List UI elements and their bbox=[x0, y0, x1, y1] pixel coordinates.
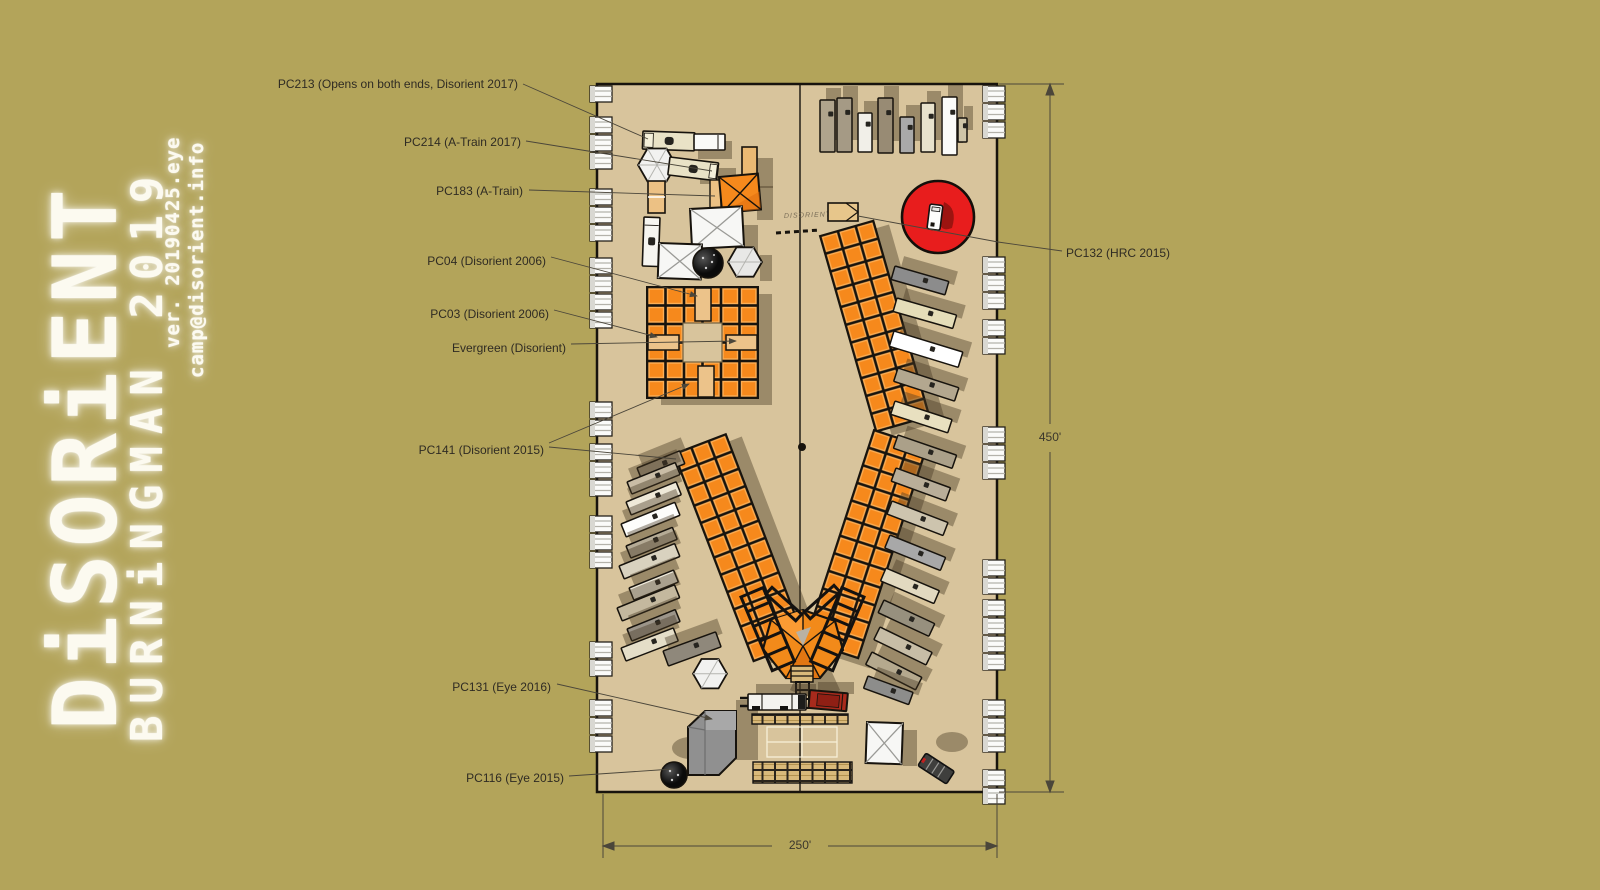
porta-potty bbox=[983, 86, 1005, 102]
center-point bbox=[798, 443, 806, 451]
porta-potty bbox=[983, 104, 1005, 120]
courtyard bbox=[683, 323, 722, 362]
porta-potty bbox=[590, 86, 612, 102]
gray-structure-pc131 bbox=[688, 711, 736, 775]
pallet-row-1 bbox=[752, 714, 848, 724]
dimension-height-label: 450' bbox=[1030, 430, 1070, 444]
porta-potty bbox=[590, 462, 612, 478]
porta-potty bbox=[590, 207, 612, 223]
label-pc214: PC214 (A-Train 2017) bbox=[404, 135, 521, 149]
porta-potty bbox=[983, 275, 1005, 291]
porta-potty bbox=[983, 427, 1005, 443]
porta-potty bbox=[590, 135, 612, 151]
gate-south bbox=[698, 366, 714, 397]
white-van bbox=[642, 217, 660, 267]
porta-potty bbox=[983, 736, 1005, 752]
label-pc03: PC03 (Disorient 2006) bbox=[430, 307, 549, 321]
disco-ball-pc116 bbox=[661, 762, 687, 788]
porta-potty bbox=[590, 534, 612, 550]
dimension-width-label: 250' bbox=[775, 838, 825, 852]
gate-column bbox=[648, 181, 665, 213]
porta-potty bbox=[590, 552, 612, 568]
box-truck bbox=[694, 134, 725, 150]
gate-east bbox=[726, 335, 757, 350]
porta-potty bbox=[590, 117, 612, 133]
label-pc183: PC183 (A-Train) bbox=[436, 184, 523, 198]
label-pc131: PC131 (Eye 2016) bbox=[452, 680, 551, 694]
white-canopy-1 bbox=[690, 206, 744, 249]
porta-potty bbox=[983, 700, 1005, 716]
porta-potty bbox=[983, 636, 1005, 652]
porta-potty bbox=[983, 654, 1005, 670]
porta-potty bbox=[590, 402, 612, 418]
label-pc213: PC213 (Opens on both ends, Disorient 201… bbox=[278, 77, 518, 91]
pallet-row-2 bbox=[753, 762, 852, 783]
disco-ball-top bbox=[693, 248, 723, 278]
porta-potty bbox=[590, 660, 612, 676]
porta-potty bbox=[983, 122, 1005, 138]
porta-potty bbox=[590, 189, 612, 205]
porta-potty bbox=[590, 480, 612, 496]
porta-potty bbox=[590, 718, 612, 734]
porta-potty bbox=[983, 445, 1005, 461]
porta-potty bbox=[983, 718, 1005, 734]
porta-potty bbox=[983, 788, 1005, 804]
label-pc116: PC116 (Eye 2015) bbox=[466, 771, 564, 785]
porta-potty bbox=[590, 258, 612, 274]
van-in-circle bbox=[927, 204, 943, 230]
porta-potty bbox=[590, 736, 612, 752]
porta-potty bbox=[590, 516, 612, 532]
red-circle-hrc bbox=[902, 181, 974, 253]
white-canopy-3 bbox=[866, 722, 903, 764]
porta-potty bbox=[590, 153, 612, 169]
porta-potty bbox=[590, 276, 612, 292]
porta-potty bbox=[590, 420, 612, 436]
porta-potty bbox=[983, 578, 1005, 594]
porta-potty bbox=[983, 770, 1005, 786]
label-pc04: PC04 (Disorient 2006) bbox=[427, 254, 546, 268]
sign-structure-pc132 bbox=[828, 203, 858, 221]
page: DiSORiENT BURNiNGMAN 2019 ver. 20190425.… bbox=[0, 0, 1600, 890]
porta-potty bbox=[983, 560, 1005, 576]
porta-potty bbox=[590, 642, 612, 658]
gate-north bbox=[695, 288, 711, 321]
white-truck bbox=[740, 694, 806, 710]
porta-potty bbox=[590, 294, 612, 310]
porta-potty bbox=[983, 338, 1005, 354]
porta-potty bbox=[983, 600, 1005, 616]
red-truck bbox=[808, 690, 847, 711]
porta-potty bbox=[983, 257, 1005, 273]
porta-potty bbox=[590, 225, 612, 241]
porta-potty bbox=[983, 463, 1005, 479]
porta-potty bbox=[590, 700, 612, 716]
label-evergreen: Evergreen (Disorient) bbox=[452, 341, 566, 355]
site-plan: DISORIENT bbox=[0, 0, 1600, 890]
porta-potty bbox=[983, 320, 1005, 336]
donut-shade-structure bbox=[647, 287, 772, 405]
porta-potty bbox=[983, 293, 1005, 309]
label-pc132: PC132 (HRC 2015) bbox=[1066, 246, 1170, 260]
porta-potty bbox=[983, 618, 1005, 634]
label-pc141: PC141 (Disorient 2015) bbox=[419, 443, 544, 457]
